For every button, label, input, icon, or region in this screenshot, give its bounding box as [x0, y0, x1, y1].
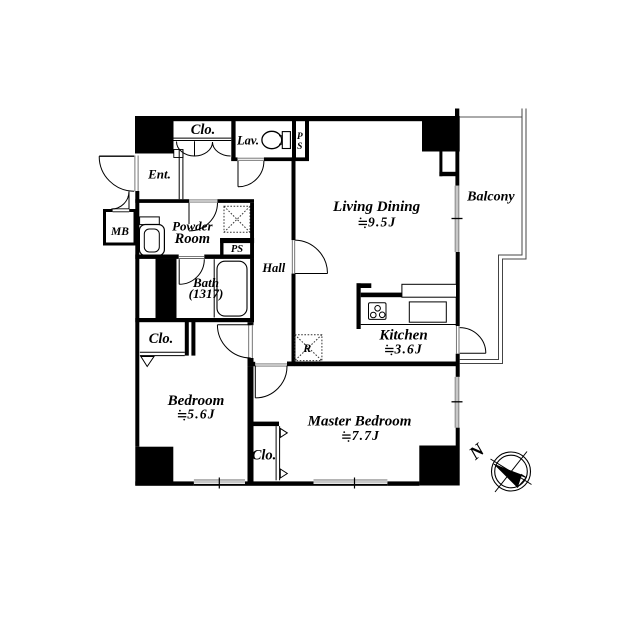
svg-text:Ent.: Ent. [147, 167, 171, 182]
svg-text:Living Dining: Living Dining [332, 199, 421, 215]
svg-text:Clo.: Clo. [149, 331, 174, 347]
svg-text:Lav.: Lav. [236, 134, 259, 148]
svg-text:3.6J: 3.6J [394, 341, 423, 356]
svg-text:R: R [302, 341, 311, 355]
svg-text:Clo.: Clo. [252, 447, 277, 463]
svg-text:P: P [297, 132, 303, 142]
svg-text:MB: MB [110, 226, 129, 238]
svg-text:9.5J: 9.5J [368, 214, 396, 229]
svg-text:S: S [297, 142, 302, 152]
svg-text:7.7J: 7.7J [352, 428, 380, 443]
svg-text:5.6J: 5.6J [187, 407, 215, 422]
svg-text:Room: Room [174, 231, 210, 247]
svg-text:Clo.: Clo. [191, 122, 216, 138]
svg-text:Hall: Hall [261, 261, 285, 275]
svg-text:PS: PS [231, 244, 243, 255]
svg-text:(1317): (1317) [189, 286, 224, 301]
svg-text:Balcony: Balcony [466, 189, 515, 204]
svg-text:Master Bedroom: Master Bedroom [307, 413, 412, 429]
